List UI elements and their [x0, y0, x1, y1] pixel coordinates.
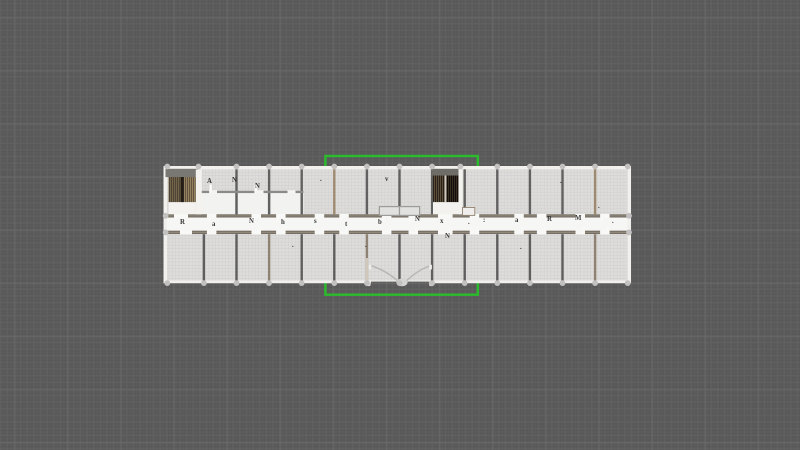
svg-text:.: .: [598, 203, 600, 210]
svg-text:s: s: [314, 218, 317, 225]
svg-text:R: R: [547, 216, 552, 223]
svg-text:.: .: [560, 178, 562, 185]
svg-text:.: .: [365, 242, 367, 249]
svg-text:N: N: [232, 177, 237, 184]
svg-text:N: N: [249, 218, 254, 225]
svg-text:b: b: [378, 219, 382, 226]
svg-text:.: .: [468, 219, 470, 226]
svg-text:M: M: [575, 215, 582, 222]
svg-text:x: x: [440, 218, 444, 225]
svg-text:a: a: [515, 217, 519, 224]
svg-text:.: .: [520, 244, 522, 251]
svg-text:N: N: [415, 216, 420, 223]
svg-text:a: a: [212, 221, 216, 228]
svg-text:.: .: [612, 218, 614, 225]
svg-text:N: N: [445, 233, 450, 240]
svg-text:h: h: [281, 219, 285, 226]
svg-text:.: .: [320, 176, 322, 183]
svg-text:R: R: [180, 219, 185, 226]
svg-text:.: .: [292, 242, 294, 249]
svg-text:A: A: [207, 178, 212, 185]
svg-text:N: N: [255, 183, 260, 190]
svg-text:v: v: [385, 176, 389, 183]
svg-text::: :: [483, 217, 485, 224]
